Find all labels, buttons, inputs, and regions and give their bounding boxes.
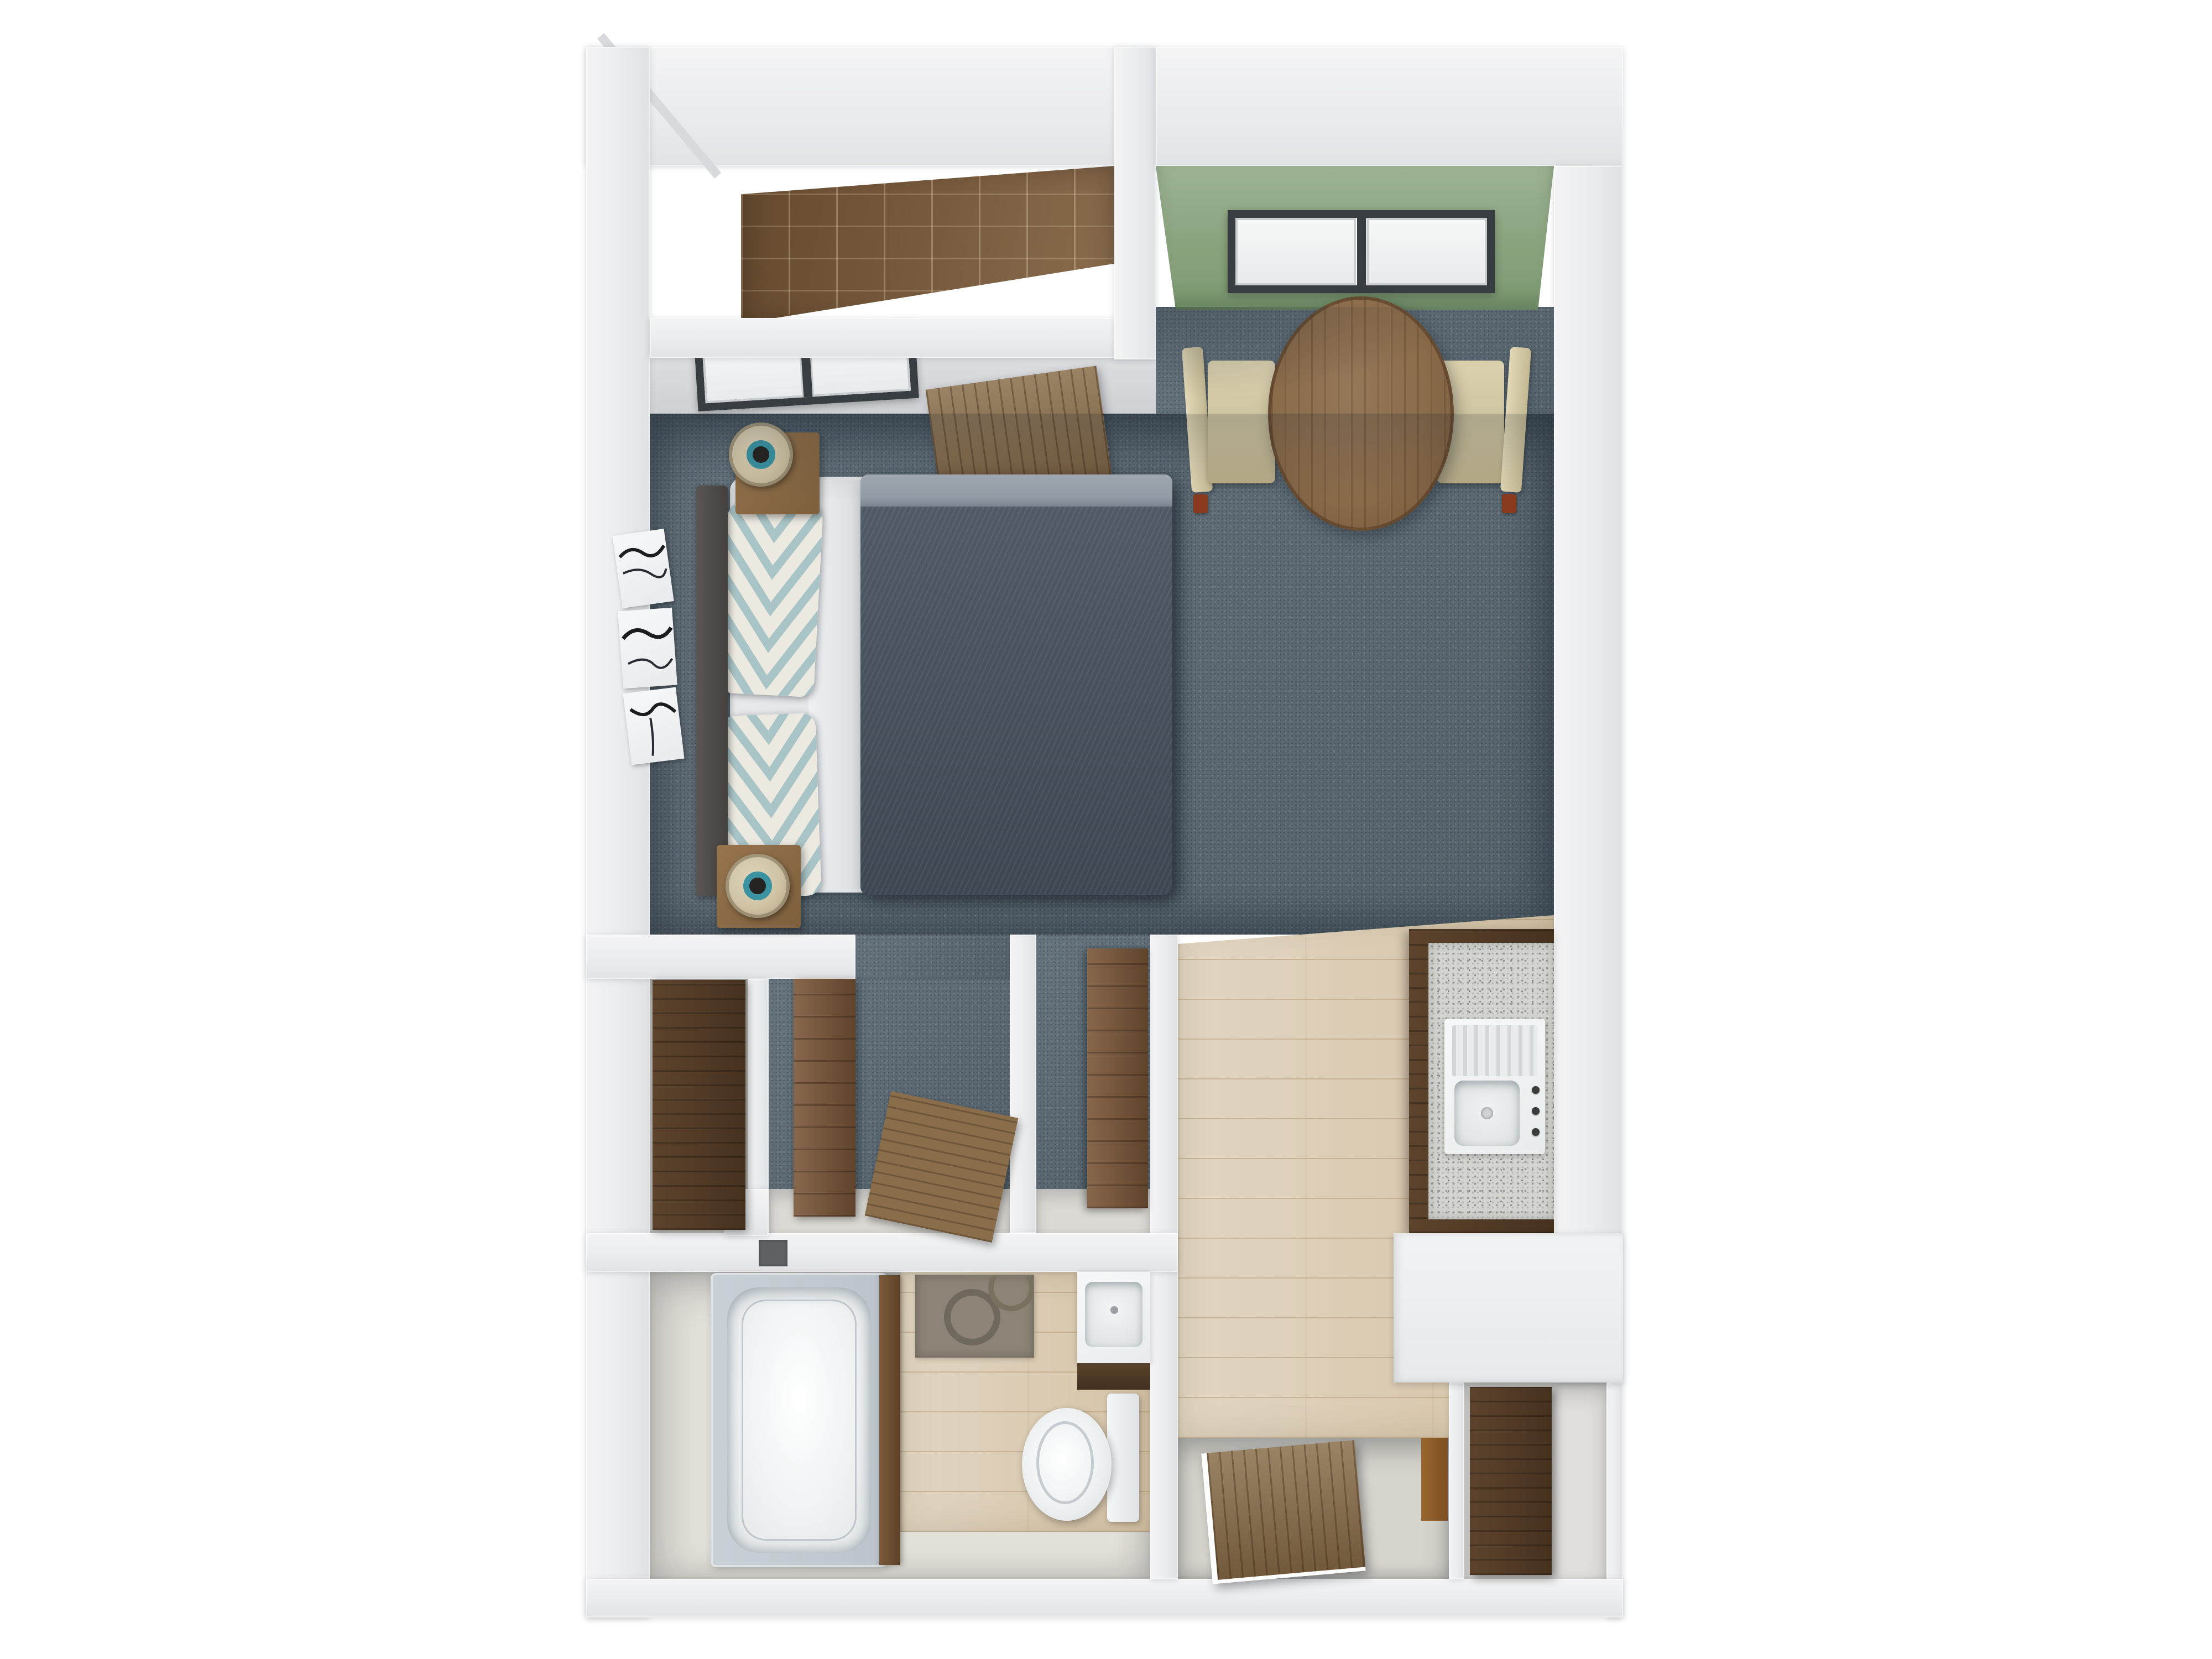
art-strokes: [623, 687, 684, 765]
dining-window-pane-right: [1366, 218, 1487, 285]
entry-open-door: [1201, 1440, 1366, 1584]
wall-closet-dining-column: [1114, 47, 1156, 359]
toilet-bowl: [1022, 1408, 1112, 1521]
dining-chair-left-foot: [1193, 494, 1208, 513]
wall-dining-top: [1156, 47, 1623, 166]
kitchen-sink-drain: [1481, 1107, 1493, 1119]
bathroom-door-panel: [879, 1275, 900, 1565]
dining-table: [1268, 296, 1454, 531]
bed-duvet: [860, 474, 1172, 895]
wall-east: [1554, 166, 1623, 1383]
bath-mat: [915, 1275, 1034, 1358]
dining-window-mullion: [1357, 218, 1366, 285]
wardrobe-left-panel: [653, 980, 745, 1230]
wall-art-canvas-1: [612, 529, 674, 608]
bathroom-vanity-sink: [1077, 1272, 1150, 1363]
kitchen-drainboard: [1452, 1025, 1537, 1076]
kitchen-knob-3: [1532, 1128, 1540, 1136]
wall-closet-band-top: [586, 935, 855, 979]
entry-door-frame-strip: [1421, 1438, 1448, 1521]
vanity-basin: [1085, 1282, 1142, 1347]
vanity-faucet-dot: [1110, 1306, 1118, 1314]
wall-art-canvas-3: [623, 687, 684, 765]
dining-chair-left-seat: [1208, 361, 1275, 483]
wall-south: [586, 1579, 1623, 1618]
kitchen-sink-module: [1444, 1019, 1545, 1154]
toilet-tank: [1107, 1394, 1139, 1522]
wall-closet-sill: [650, 318, 1156, 358]
dining-window: [1228, 210, 1495, 293]
door-stop-square: [759, 1240, 787, 1266]
wall-closet-divider-b: [1010, 935, 1036, 1233]
vanity-wood-front: [1077, 1363, 1150, 1390]
dining-chair-right-foot: [1502, 494, 1516, 513]
storage-closet-tile-floor: [741, 166, 1114, 324]
walkin-closet-carpet-opening: [855, 935, 1010, 982]
entry-wardrobe: [1470, 1387, 1552, 1575]
bed-pillow-top: [718, 502, 823, 698]
kitchen-base-counter: [1394, 1233, 1623, 1383]
walkin-wardrobe-panel: [794, 979, 855, 1217]
kitchen-knob-1: [1532, 1086, 1540, 1094]
wall-entry-closet-left: [1449, 1383, 1464, 1579]
toilet-seat-ring: [1036, 1421, 1094, 1504]
wall-top-left-block: [586, 47, 1156, 166]
kitchen-knob-2: [1532, 1107, 1540, 1115]
bed-headboard: [696, 486, 728, 896]
nightstand-lamp-top: [729, 422, 793, 487]
wall-west: [586, 47, 650, 1618]
linen-closet-panel: [1087, 948, 1148, 1208]
dining-window-pane-left: [1235, 218, 1356, 285]
bathtub-basin: [727, 1287, 871, 1553]
wall-art-canvas-2: [618, 608, 677, 688]
art-strokes: [618, 608, 677, 688]
art-strokes: [612, 529, 674, 608]
bed-duvet-fold-band: [860, 474, 1172, 507]
wall-bathroom-top: [586, 1233, 1178, 1272]
bathtub: [711, 1273, 888, 1567]
walkin-leaning-board: [865, 1091, 1019, 1243]
floor-plan-render: [0, 0, 2212, 1659]
pillow-chevron-right: [766, 504, 823, 697]
nightstand-lamp-bottom: [726, 854, 790, 918]
